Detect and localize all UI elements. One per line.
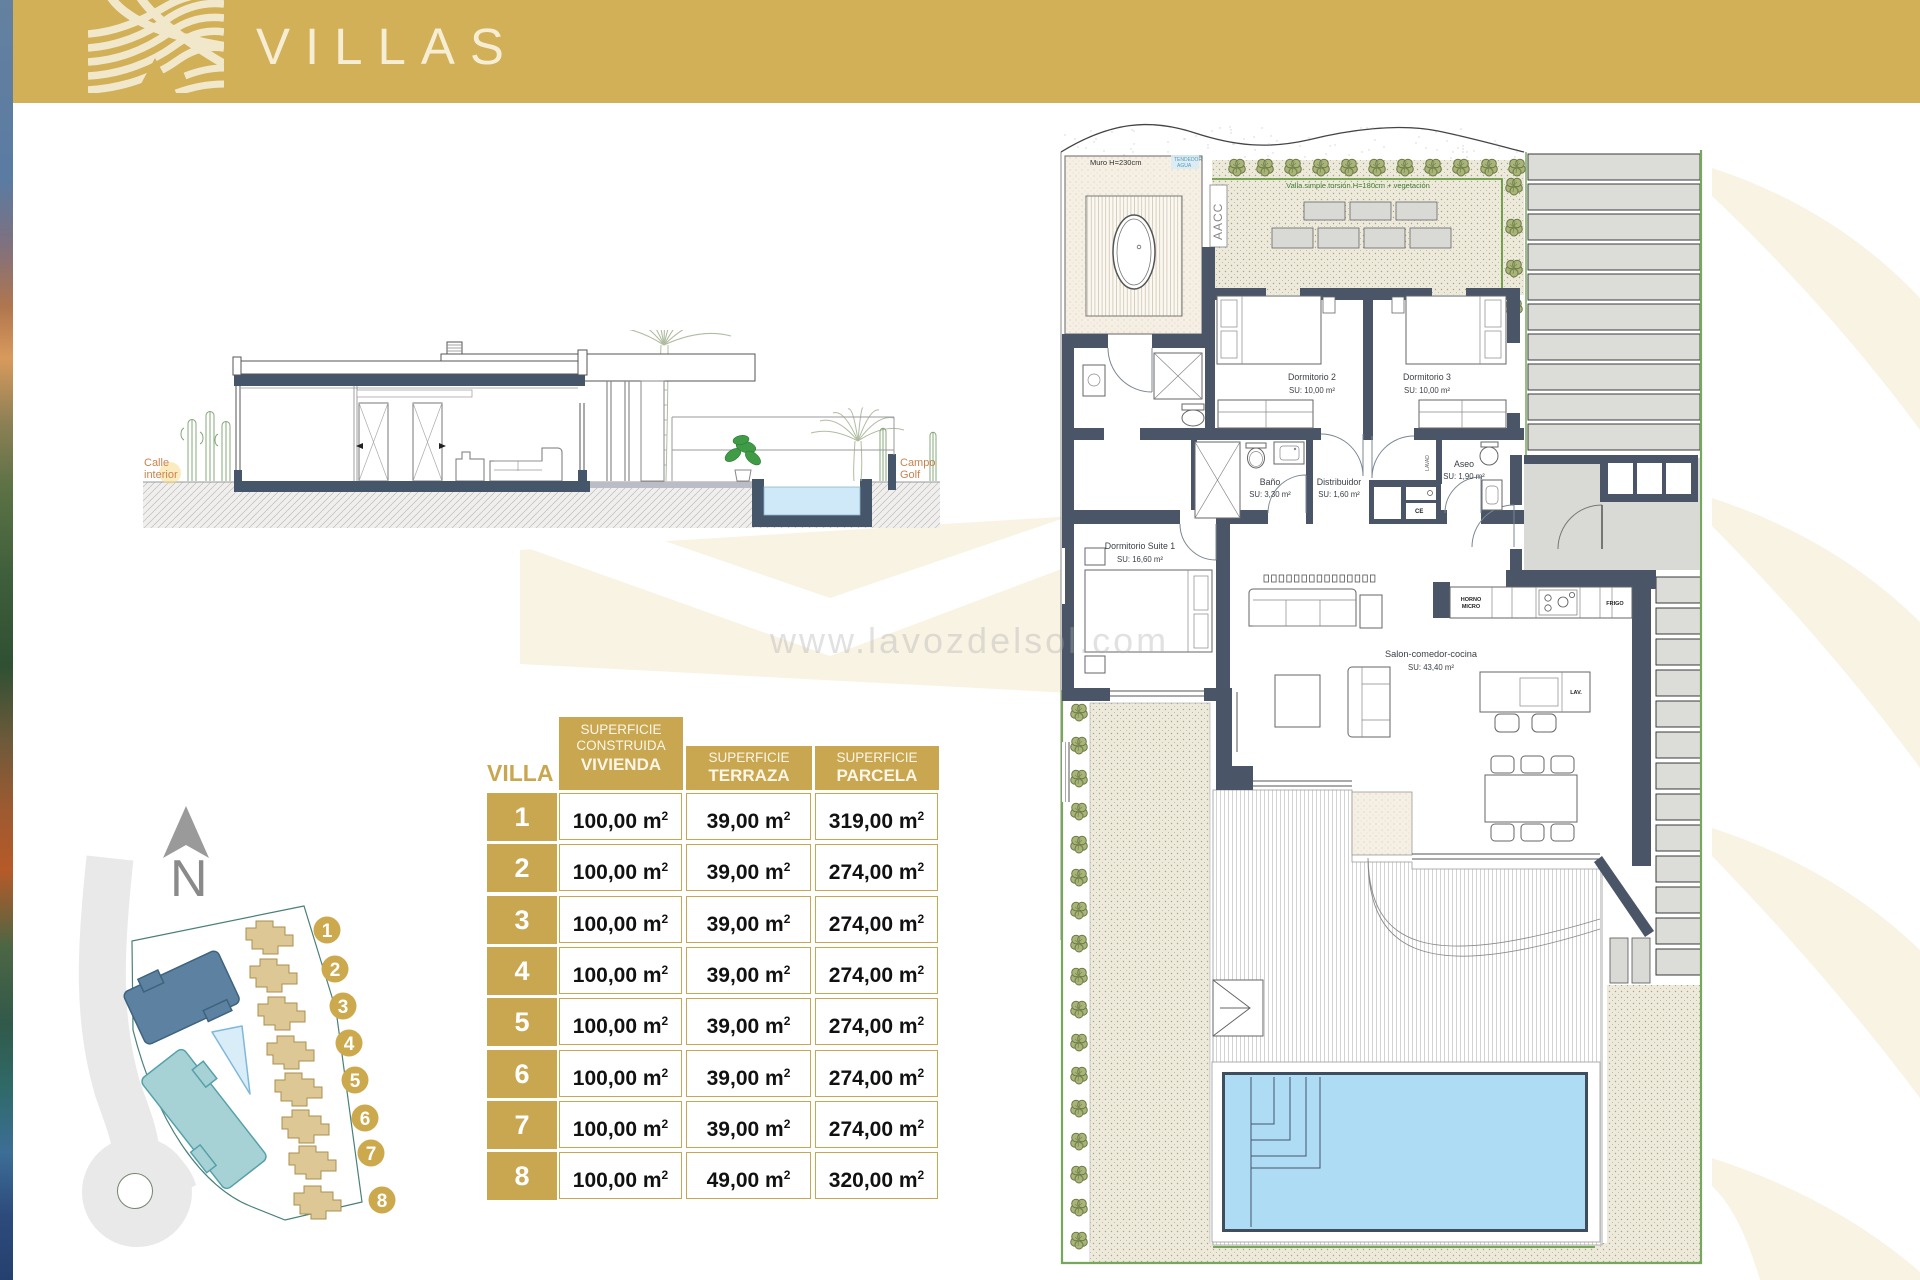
svg-text:SU: 10,00 m²: SU: 10,00 m² — [1289, 386, 1335, 395]
svg-text:Campo: Campo — [900, 457, 935, 469]
svg-text:LAVAD: LAVAD — [1425, 455, 1431, 471]
svg-text:SU: 43,40 m²: SU: 43,40 m² — [1408, 663, 1454, 672]
svg-text:Dormitorio Suite 1: Dormitorio Suite 1 — [1105, 541, 1176, 551]
svg-text:8: 8 — [377, 1191, 388, 1212]
svg-text:LAV.: LAV. — [1570, 690, 1582, 696]
svg-text:SU: 1,60 m²: SU: 1,60 m² — [1318, 490, 1360, 499]
svg-text:Dormitorio 2: Dormitorio 2 — [1288, 372, 1336, 382]
svg-text:Aseo: Aseo — [1454, 459, 1474, 469]
svg-text:Dormitorio 3: Dormitorio 3 — [1403, 372, 1451, 382]
svg-text:N: N — [170, 850, 208, 908]
svg-text:Golf: Golf — [900, 469, 921, 481]
svg-text:5: 5 — [350, 1071, 361, 1092]
svg-text:AACC: AACC — [1211, 203, 1225, 240]
svg-text:Valla simple torsión H=180cm +: Valla simple torsión H=180cm + vegetació… — [1286, 181, 1430, 190]
svg-text:Salon-comedor-cocina: Salon-comedor-cocina — [1385, 649, 1478, 659]
svg-text:4: 4 — [344, 1034, 355, 1055]
svg-text:Baño: Baño — [1260, 477, 1281, 487]
svg-text:6: 6 — [360, 1109, 371, 1130]
svg-text:AGUA: AGUA — [1177, 163, 1192, 169]
svg-text:7: 7 — [366, 1144, 377, 1165]
svg-text:Calle: Calle — [144, 457, 169, 469]
svg-text:interior: interior — [144, 469, 178, 481]
svg-text:Distribuidor: Distribuidor — [1317, 477, 1362, 487]
svg-text:3: 3 — [338, 997, 349, 1018]
svg-text:FRIGO: FRIGO — [1606, 601, 1624, 607]
svg-text:HORNO: HORNO — [1461, 597, 1482, 603]
svg-text:SU: 16,60 m²: SU: 16,60 m² — [1117, 555, 1163, 564]
svg-text:CE: CE — [1415, 509, 1423, 515]
svg-text:SU: 1,90 m²: SU: 1,90 m² — [1443, 472, 1485, 481]
svg-text:Muro H=230cm: Muro H=230cm — [1090, 158, 1141, 167]
svg-text:1: 1 — [322, 921, 333, 942]
svg-text:2: 2 — [330, 960, 341, 981]
svg-text:MICRO: MICRO — [1462, 604, 1481, 610]
svg-text:SU: 10,00 m²: SU: 10,00 m² — [1404, 386, 1450, 395]
svg-text:SU: 3,30 m²: SU: 3,30 m² — [1249, 490, 1291, 499]
